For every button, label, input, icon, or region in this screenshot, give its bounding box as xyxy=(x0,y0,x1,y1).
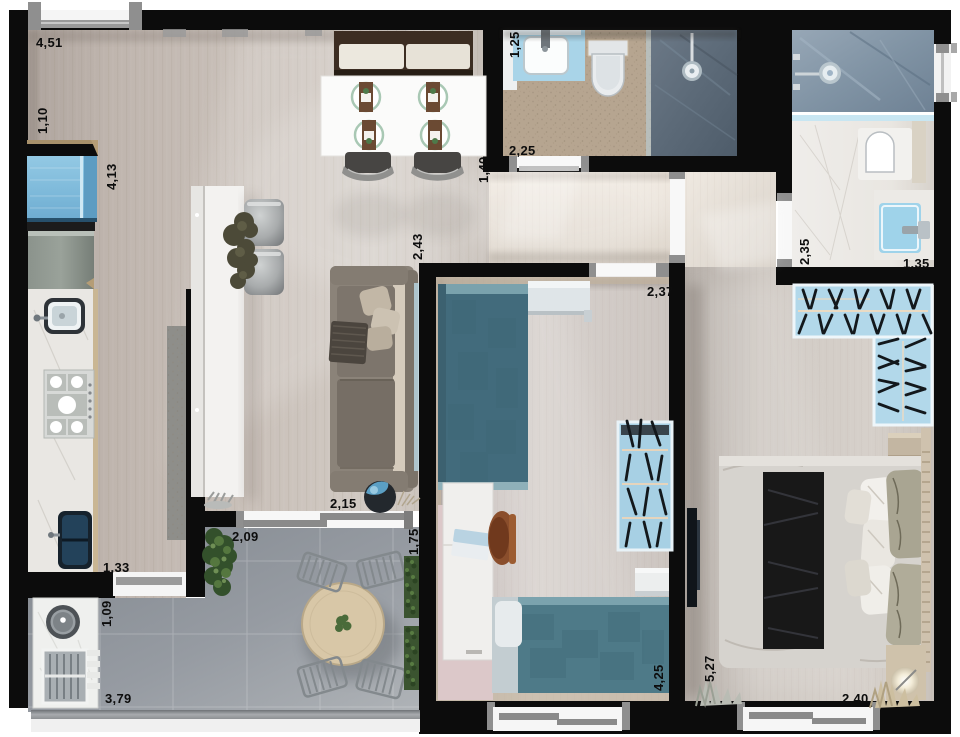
svg-text:2,15: 2,15 xyxy=(330,496,357,511)
svg-text:1,25: 1,25 xyxy=(507,31,522,58)
svg-text:4,51: 4,51 xyxy=(36,35,63,50)
svg-text:1,09: 1,09 xyxy=(99,600,114,627)
svg-text:1,35: 1,35 xyxy=(903,256,930,271)
svg-text:2,25: 2,25 xyxy=(509,143,536,158)
svg-text:4,25: 4,25 xyxy=(651,664,666,691)
svg-text:1,10: 1,10 xyxy=(35,107,50,134)
svg-text:2,35: 2,35 xyxy=(797,238,812,265)
svg-text:3,79: 3,79 xyxy=(105,691,132,706)
svg-text:5,27: 5,27 xyxy=(702,655,717,682)
svg-text:1,40: 1,40 xyxy=(476,156,491,183)
svg-text:1,33: 1,33 xyxy=(103,560,130,575)
svg-text:1,75: 1,75 xyxy=(406,528,421,555)
svg-text:2,43: 2,43 xyxy=(410,233,425,260)
svg-text:4,13: 4,13 xyxy=(104,163,119,190)
svg-text:2,09: 2,09 xyxy=(232,529,259,544)
svg-text:2,40: 2,40 xyxy=(842,691,869,706)
svg-text:2,37: 2,37 xyxy=(647,284,674,299)
